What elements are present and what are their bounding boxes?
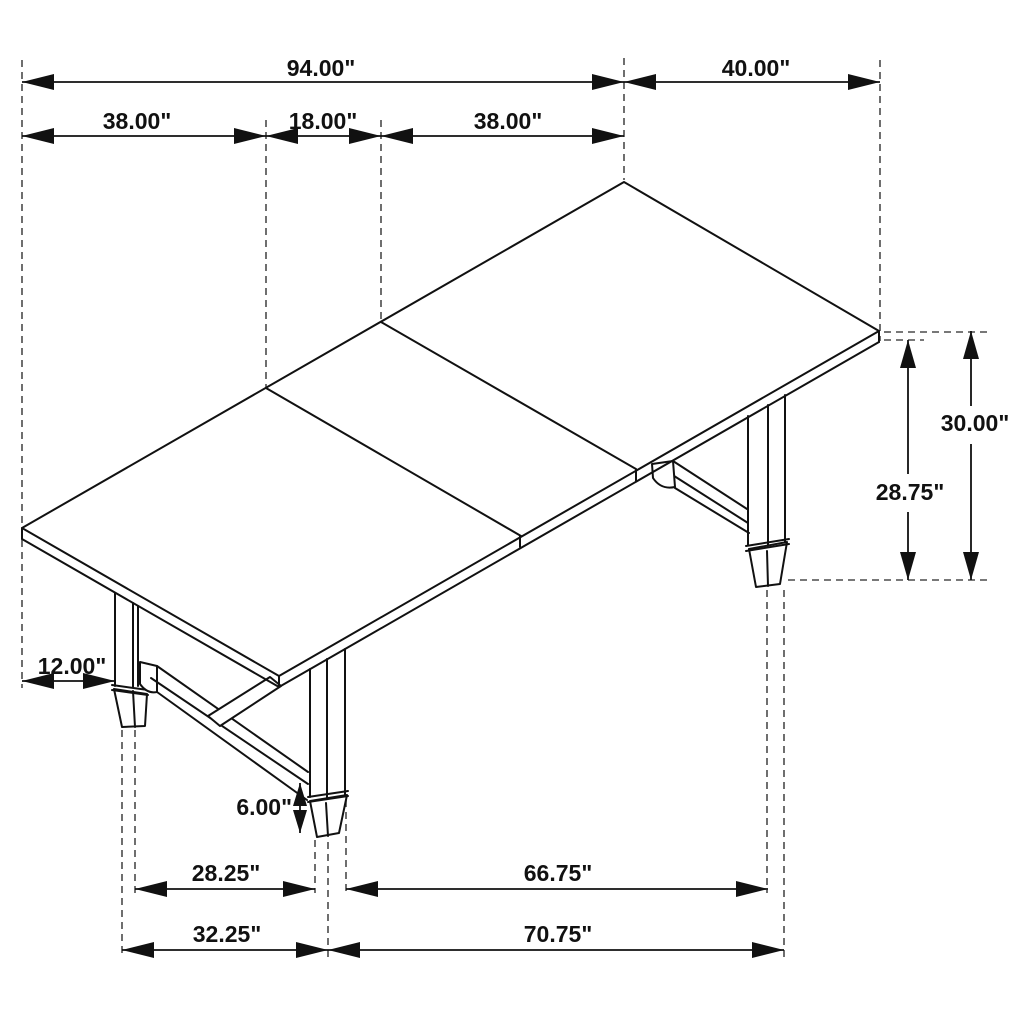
dim-table-width-label: 40.00" <box>722 55 790 81</box>
dim-clearance-height-label: 28.75" <box>876 479 944 505</box>
dim-feet-long-outer-spacing: 70.75" <box>328 921 784 958</box>
dim-right-section: 38.00" <box>381 108 624 144</box>
dim-table-width: 40.00" <box>624 55 880 90</box>
tabletop <box>22 182 879 687</box>
dim-feet-outer-spacing: 32.25" <box>122 921 328 958</box>
dim-clearance-height: 28.75" <box>876 340 944 580</box>
dim-right-section-label: 38.00" <box>474 108 542 134</box>
dim-foot-height: 6.00" <box>236 783 307 833</box>
table-dimension-diagram: 94.00" 40.00" 38.00" 18.00" 38.00" <box>0 0 1024 1024</box>
dim-feet-long-inner-spacing-label: 66.75" <box>524 860 592 886</box>
tabletop-surface <box>22 182 879 676</box>
dim-foot-height-label: 6.00" <box>236 794 292 820</box>
front-left-leg <box>308 649 348 837</box>
dim-overall-length-label: 94.00" <box>287 55 355 81</box>
dim-table-height-label: 30.00" <box>941 410 1009 436</box>
dim-leaf-label: 18.00" <box>289 108 357 134</box>
back-left-leg <box>112 593 148 727</box>
right-leg <box>746 395 789 587</box>
dim-end-overhang-label: 12.00" <box>38 653 106 679</box>
dim-overall-length: 94.00" <box>22 55 624 90</box>
dim-feet-long-inner-spacing: 66.75" <box>346 860 768 897</box>
brace-body <box>208 677 281 726</box>
left-brace <box>208 677 281 726</box>
dim-left-section-label: 38.00" <box>103 108 171 134</box>
dim-feet-outer-spacing-label: 32.25" <box>193 921 261 947</box>
dim-end-overhang: 12.00" <box>22 653 115 689</box>
dim-feet-inner-spacing: 28.25" <box>135 860 315 897</box>
left-stretcher <box>140 662 308 800</box>
table-drawing <box>22 182 879 837</box>
right-stretcher <box>652 461 749 533</box>
dim-leaf: 18.00" <box>266 108 381 144</box>
dim-left-section: 38.00" <box>22 108 266 144</box>
dim-feet-inner-spacing-label: 28.25" <box>192 860 260 886</box>
dim-feet-long-outer-spacing-label: 70.75" <box>524 921 592 947</box>
stretcher-end-face <box>140 662 157 692</box>
dim-table-height: 30.00" <box>941 331 1009 580</box>
